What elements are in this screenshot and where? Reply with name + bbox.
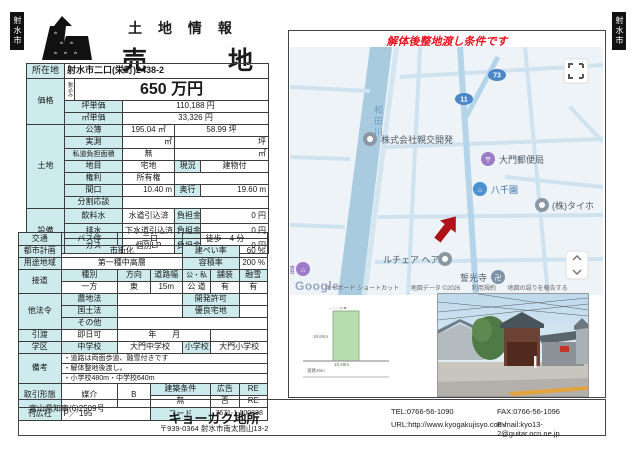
- city-badge-right: 射水市: [612, 12, 626, 50]
- measured-area-tsubo: 坪: [175, 137, 269, 149]
- route-shield-73: 73: [488, 69, 506, 81]
- road-public-header: 公・私: [182, 270, 210, 282]
- map-photo-panel: 解体後整地渡し条件です 73 11: [288, 30, 606, 398]
- lot-shape: [333, 311, 359, 361]
- right-house: [576, 324, 588, 364]
- rights-empty: [175, 173, 269, 185]
- coverage-value: 60 %: [239, 246, 267, 258]
- poi-yachien: ⌂ 八千園: [473, 182, 518, 196]
- handover-label: 引渡: [19, 330, 62, 342]
- junior-high-label: 中学校: [61, 342, 118, 354]
- price-label: 価格: [27, 79, 65, 125]
- tsubo-unit-label: 坪単価: [65, 101, 123, 113]
- division-empty: [123, 197, 269, 209]
- attr-mapdata: 地図データ ©2026: [411, 286, 460, 292]
- elementary-value: 大門小学校: [211, 342, 268, 354]
- attr-report-error[interactable]: 地図の誤りを報告する: [508, 286, 568, 292]
- svg-text:大門郵便局: 大門郵便局: [499, 154, 544, 165]
- transport-busstop: バス停: [61, 233, 118, 246]
- fullscreen-button[interactable]: [564, 59, 588, 83]
- document-category: 土 地 情 報: [108, 18, 258, 38]
- road-width-label: 道路15m: [307, 367, 325, 374]
- road-snowmelt-header: 融雪: [239, 270, 267, 282]
- cityplan-value: 市街化: [61, 246, 182, 258]
- svg-text:誓光寺: 誓光寺: [460, 272, 487, 283]
- water-fee-label: 負担金: [175, 209, 201, 224]
- dev-permit-label: 開発許可: [182, 294, 239, 306]
- svg-text:11: 11: [460, 97, 468, 104]
- poi-taiho: (株)タイホ: [535, 198, 594, 212]
- re-label: RE: [239, 384, 267, 396]
- road-width-value: 15m: [150, 282, 182, 294]
- cityplan-label: 都市計画: [19, 246, 62, 258]
- division-label: 分割応談: [65, 197, 123, 209]
- quality-lot-label: 優良宅地: [182, 306, 239, 318]
- handover-date: 年 月: [118, 330, 211, 342]
- road-paved-value: 有: [211, 282, 239, 294]
- transport-stopname: 二口: [118, 233, 183, 246]
- location-map: 73 11 和田川 株式会社親交開発 〒 大門郵便局 ⌂: [290, 47, 603, 295]
- property-detail-table: 交通 バス停 二口 徒歩 4 分 都市計画 市街化 建ぺい率 60 % 用途地域…: [18, 232, 268, 421]
- road-public-value: 公 道: [182, 282, 210, 294]
- price-tax-note: 税込み: [65, 79, 75, 101]
- agency-footer: 富山県知事(6)2509号 キョーガク地所 〒939-0364 射水市南太閤山1…: [18, 399, 606, 436]
- tsubo-unit-price: 110,188 円: [123, 101, 269, 113]
- road-type-value: 一方: [61, 282, 118, 294]
- water-fee: 0 円: [201, 209, 269, 224]
- location-label: 所在地: [27, 64, 65, 79]
- route-shield-11: 11: [455, 93, 473, 105]
- other-laws-label: 他法令: [19, 294, 62, 330]
- zoning-label: 用途地域: [19, 258, 62, 270]
- agency-tel: TEL:0766-56-1090: [391, 407, 454, 416]
- road-paved-header: 舗装: [211, 270, 239, 282]
- private-road-label: 私道負担面積: [65, 149, 123, 161]
- poi-kominkan: 公民館 ⌂: [290, 262, 310, 276]
- agency-url: URL:http://www.kyogakujisyo.com/: [391, 420, 506, 429]
- license-number: 富山県知事(6)2509号: [29, 403, 105, 414]
- pan-control[interactable]: [566, 251, 588, 279]
- frontage-label: 間口: [65, 185, 123, 197]
- road-direction-value: 東: [118, 282, 150, 294]
- transport-walk: 徒歩 4 分: [182, 233, 267, 246]
- svg-text:八千園: 八千園: [491, 185, 518, 195]
- road-contact-label: 接道: [19, 270, 62, 294]
- lot-diagram: —·—·m ■ 19.60m 10.40m 道路15m: [301, 303, 391, 389]
- lot-depth-label: 19.60m: [313, 334, 328, 339]
- castle-logo-icon: ılıılıılı ılıılıılı: [36, 14, 98, 62]
- other-law-label: その他: [61, 318, 118, 330]
- rights-value: 所有権: [123, 173, 175, 185]
- registered-area-sqm: 195.04 ㎡: [123, 125, 175, 137]
- junior-high-value: 大門中学校: [118, 342, 183, 354]
- location-value: 射水市二口(栄町)2438-2: [65, 64, 269, 79]
- company-logo: ılıılıılı ılıılıılı: [36, 14, 98, 67]
- property-photo: [437, 293, 589, 397]
- private-road-unit: ㎡: [175, 149, 269, 161]
- main-house-shutter: [507, 342, 537, 366]
- land-category-label: 地目: [65, 161, 123, 173]
- registered-area-label: 公簿: [65, 125, 123, 137]
- river-name: 和田川: [373, 105, 383, 138]
- attr-shortcuts[interactable]: キーボード ショートカット: [325, 286, 399, 292]
- current-state-label: 現況: [175, 161, 201, 173]
- coverage-label: 建ぺい率: [182, 246, 239, 258]
- zoning-value: 第一種中高層: [61, 258, 182, 270]
- city-badge-left: 射水市: [10, 12, 24, 50]
- water-value: 水道引込済: [123, 209, 175, 224]
- remarks-line: ・解体整地後渡し。: [61, 364, 268, 374]
- depth-label: 奥行: [175, 185, 201, 197]
- frontage-value: 10.40 m: [123, 185, 175, 197]
- svg-text:ılı: ılı: [74, 50, 77, 55]
- dev-permit-value: [239, 294, 267, 306]
- remarks-label: 備考: [19, 354, 62, 384]
- svg-text:ılı: ılı: [70, 40, 73, 45]
- svg-text:株式会社親交開発: 株式会社親交開発: [381, 134, 453, 145]
- svg-text:ılı: ılı: [54, 50, 57, 55]
- svg-text:⌂: ⌂: [301, 267, 305, 274]
- property-info-table: 所在地 射水市二口(栄町)2438-2 価格 税込み 650 万円 坪単価 11…: [26, 63, 269, 254]
- measured-area-sqm: ㎡: [123, 137, 175, 149]
- far-value: 200 %: [239, 258, 267, 270]
- depth-value: 19.60 m: [201, 185, 269, 197]
- tree-highlight: [472, 318, 492, 342]
- svg-text:(株)タイホ: (株)タイホ: [552, 200, 594, 211]
- road-width-header: 道路幅: [150, 270, 182, 282]
- agency-email: E-mail:kyo13-2@guitar.ocn.ne.jp: [497, 420, 605, 438]
- far-label: 容積率: [182, 258, 239, 270]
- attr-terms[interactable]: 利用規約: [472, 286, 496, 292]
- elementary-label: 小学校: [182, 342, 210, 354]
- other-law-value: [118, 318, 268, 330]
- price-amount: 650 万円: [75, 79, 269, 101]
- transport-label: 交通: [19, 233, 62, 246]
- sqm-unit-price: 33,326 円: [123, 113, 269, 125]
- national-land-law-value: [118, 306, 183, 318]
- land-label: 土地: [27, 125, 65, 209]
- svg-text:〒: 〒: [485, 157, 492, 164]
- handover-empty: [211, 330, 268, 342]
- road-type-header: 種別: [61, 270, 118, 282]
- farmland-law-value: [118, 294, 183, 306]
- svg-text:ılı: ılı: [64, 50, 67, 55]
- svg-text:ルチェア ヘア: ルチェア ヘア: [383, 255, 440, 265]
- current-state-value: 建物付: [201, 161, 269, 173]
- measured-area-label: 実測: [65, 137, 123, 149]
- svg-text:ılı: ılı: [54, 30, 57, 35]
- building-condition-label: 建築条件: [150, 384, 211, 396]
- school-district-label: 学区: [19, 342, 62, 354]
- road-direction-header: 方向: [118, 270, 150, 282]
- national-land-law-label: 国土法: [61, 306, 118, 318]
- bollard: [534, 356, 537, 368]
- road-snowmelt-value: 有: [239, 282, 267, 294]
- agency-fax: FAX:0766-56-1096: [497, 407, 560, 416]
- svg-text:ılı: ılı: [60, 40, 63, 45]
- agency-address: 〒939-0364 射水市南太閤山13-2: [109, 423, 319, 434]
- remarks-line: ・小学校480m・中学校640m: [61, 374, 268, 384]
- advert-label: 広告: [211, 384, 239, 396]
- sqm-unit-label: ㎡単価: [65, 113, 123, 125]
- svg-text:卍: 卍: [495, 274, 502, 282]
- registered-area-tsubo: 58.99 坪: [175, 125, 269, 137]
- svg-text:公民館: 公民館: [290, 264, 295, 275]
- poi-daimon-post-office: 〒 大門郵便局: [481, 152, 544, 166]
- farmland-law-label: 農地法: [61, 294, 118, 306]
- water-label: 飲料水: [65, 209, 123, 224]
- land-category-value: 宅地: [123, 161, 175, 173]
- quality-lot-value: [239, 306, 267, 318]
- svg-text:⌂: ⌂: [478, 187, 482, 194]
- poi-seikoji-temple: 誓光寺 卍: [460, 270, 505, 284]
- handover-value: 即日可: [61, 330, 118, 342]
- rights-label: 権利: [65, 173, 123, 185]
- lot-frontage-label: 10.40m: [334, 362, 349, 367]
- poi-lucia-hair: ルチェア ヘア: [383, 252, 452, 266]
- private-road-value: 無: [123, 149, 175, 161]
- remarks-line: ・道路は両面歩道、融雪付きです: [61, 354, 268, 364]
- red-sign: [560, 346, 569, 352]
- diagram-top-note: —·—·m ■: [329, 305, 347, 310]
- map-attribution: キーボード ショートカット 地図データ ©2026 利用規約 地図の誤りを報告す…: [290, 283, 603, 292]
- svg-text:73: 73: [493, 73, 501, 80]
